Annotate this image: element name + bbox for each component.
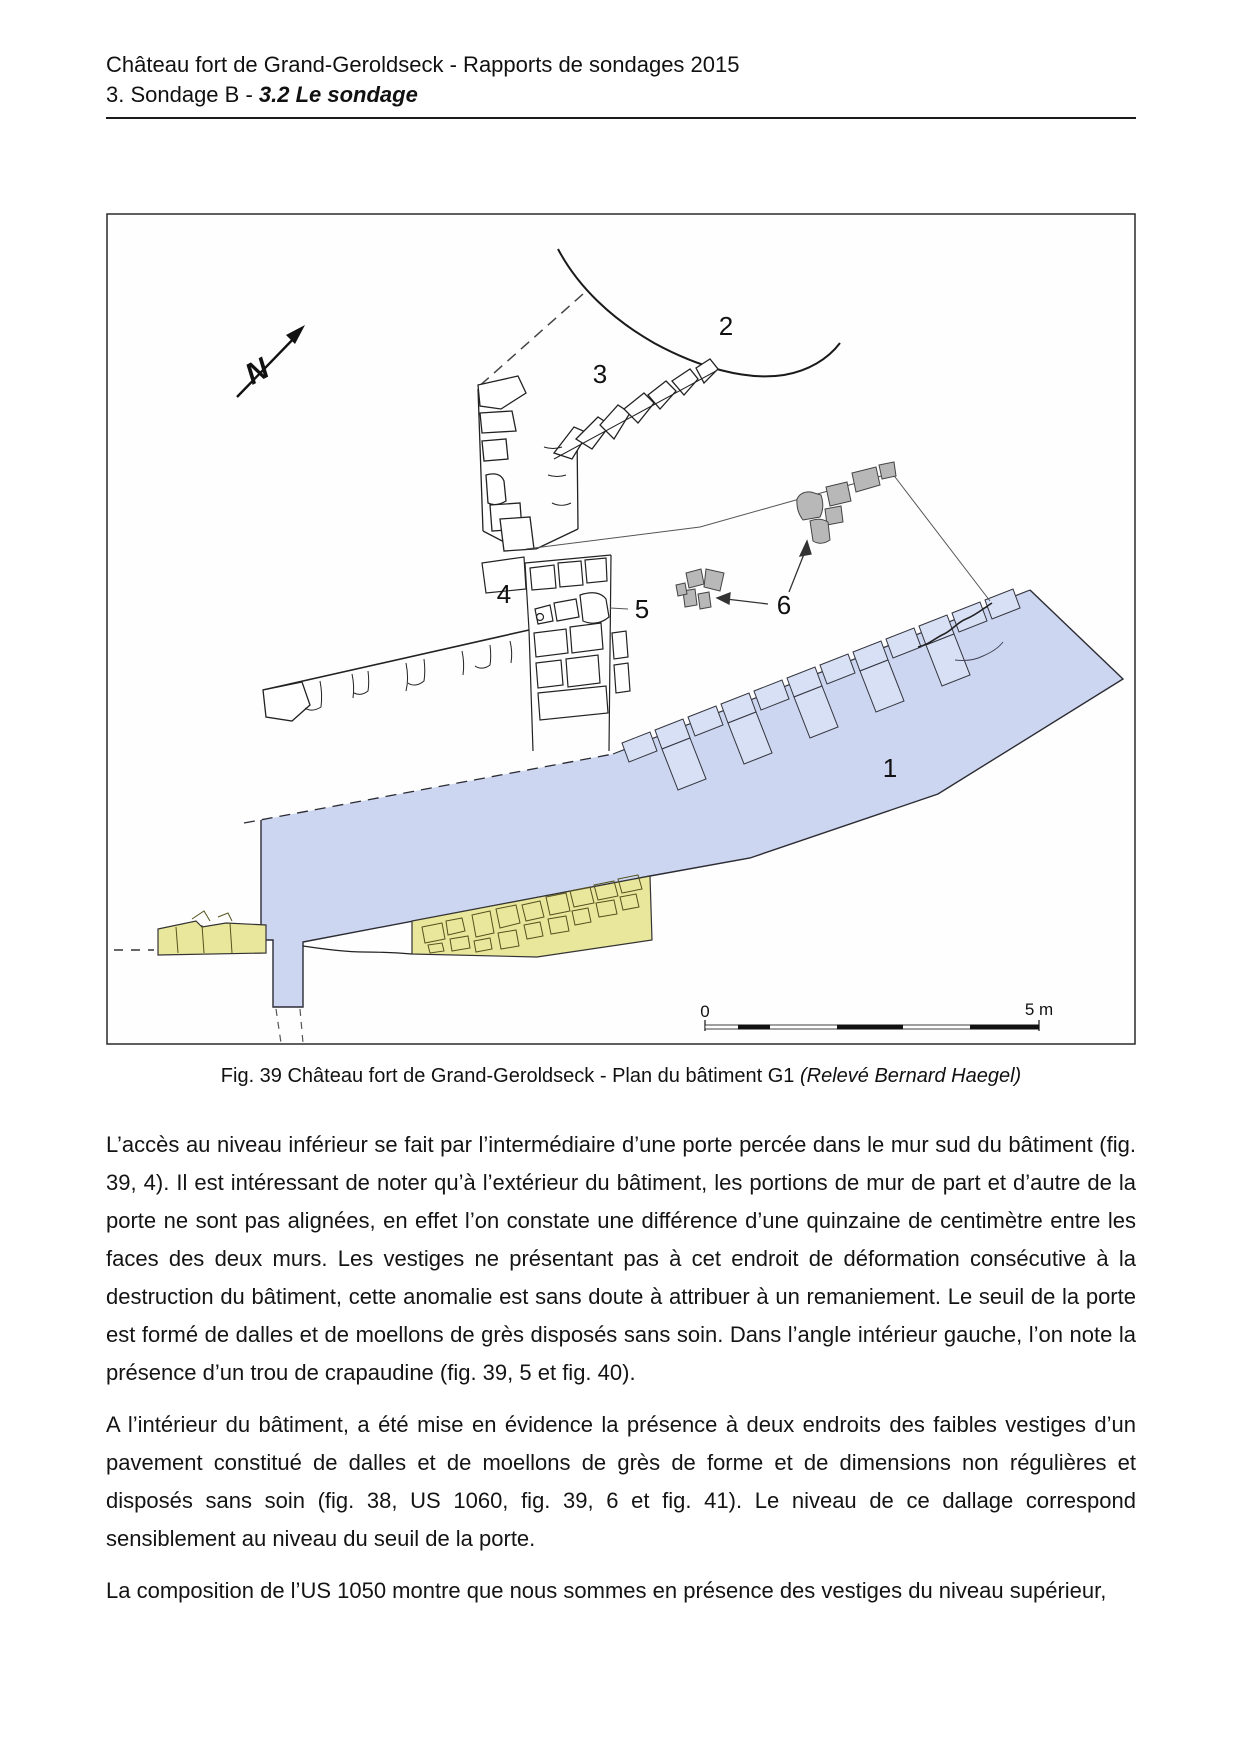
paragraph-2: A l’intérieur du bâtiment, a été mise en… <box>106 1406 1136 1558</box>
paragraph-1: L’accès au niveau inférieur se fait par … <box>106 1126 1136 1392</box>
figure-caption: Fig. 39 Château fort de Grand-Geroldseck… <box>106 1065 1136 1088</box>
header-rule <box>106 117 1136 119</box>
plan-label-4: 4 <box>497 579 511 609</box>
header-subtitle: 3. Sondage B - 3.2 Le sondage <box>106 80 1136 110</box>
figure-39: N <box>106 213 1136 1088</box>
plan-label-5: 5 <box>635 594 649 624</box>
body-text: L’accès au niveau inférieur se fait par … <box>106 1126 1136 1610</box>
paragraph-3: La composition de l’US 1050 montre que n… <box>106 1572 1136 1610</box>
document-page: Château fort de Grand-Geroldseck - Rappo… <box>0 0 1241 1755</box>
header-title: Château fort de Grand-Geroldseck - Rappo… <box>106 50 1136 80</box>
scale-five-m: 5 m <box>1025 1000 1053 1019</box>
scale-zero: 0 <box>700 1002 709 1021</box>
plan-label-2: 2 <box>719 311 733 341</box>
plan-label-1: 1 <box>883 753 897 783</box>
header-section-emphasis: 3.2 Le sondage <box>259 82 418 107</box>
plan-label-3: 3 <box>593 359 607 389</box>
site-plan-figure: N <box>106 213 1136 1045</box>
plan-label-6: 6 <box>777 590 791 620</box>
figure-caption-credit: (Relevé Bernard Haegel) <box>800 1065 1021 1087</box>
page-header: Château fort de Grand-Geroldseck - Rappo… <box>106 0 1136 119</box>
